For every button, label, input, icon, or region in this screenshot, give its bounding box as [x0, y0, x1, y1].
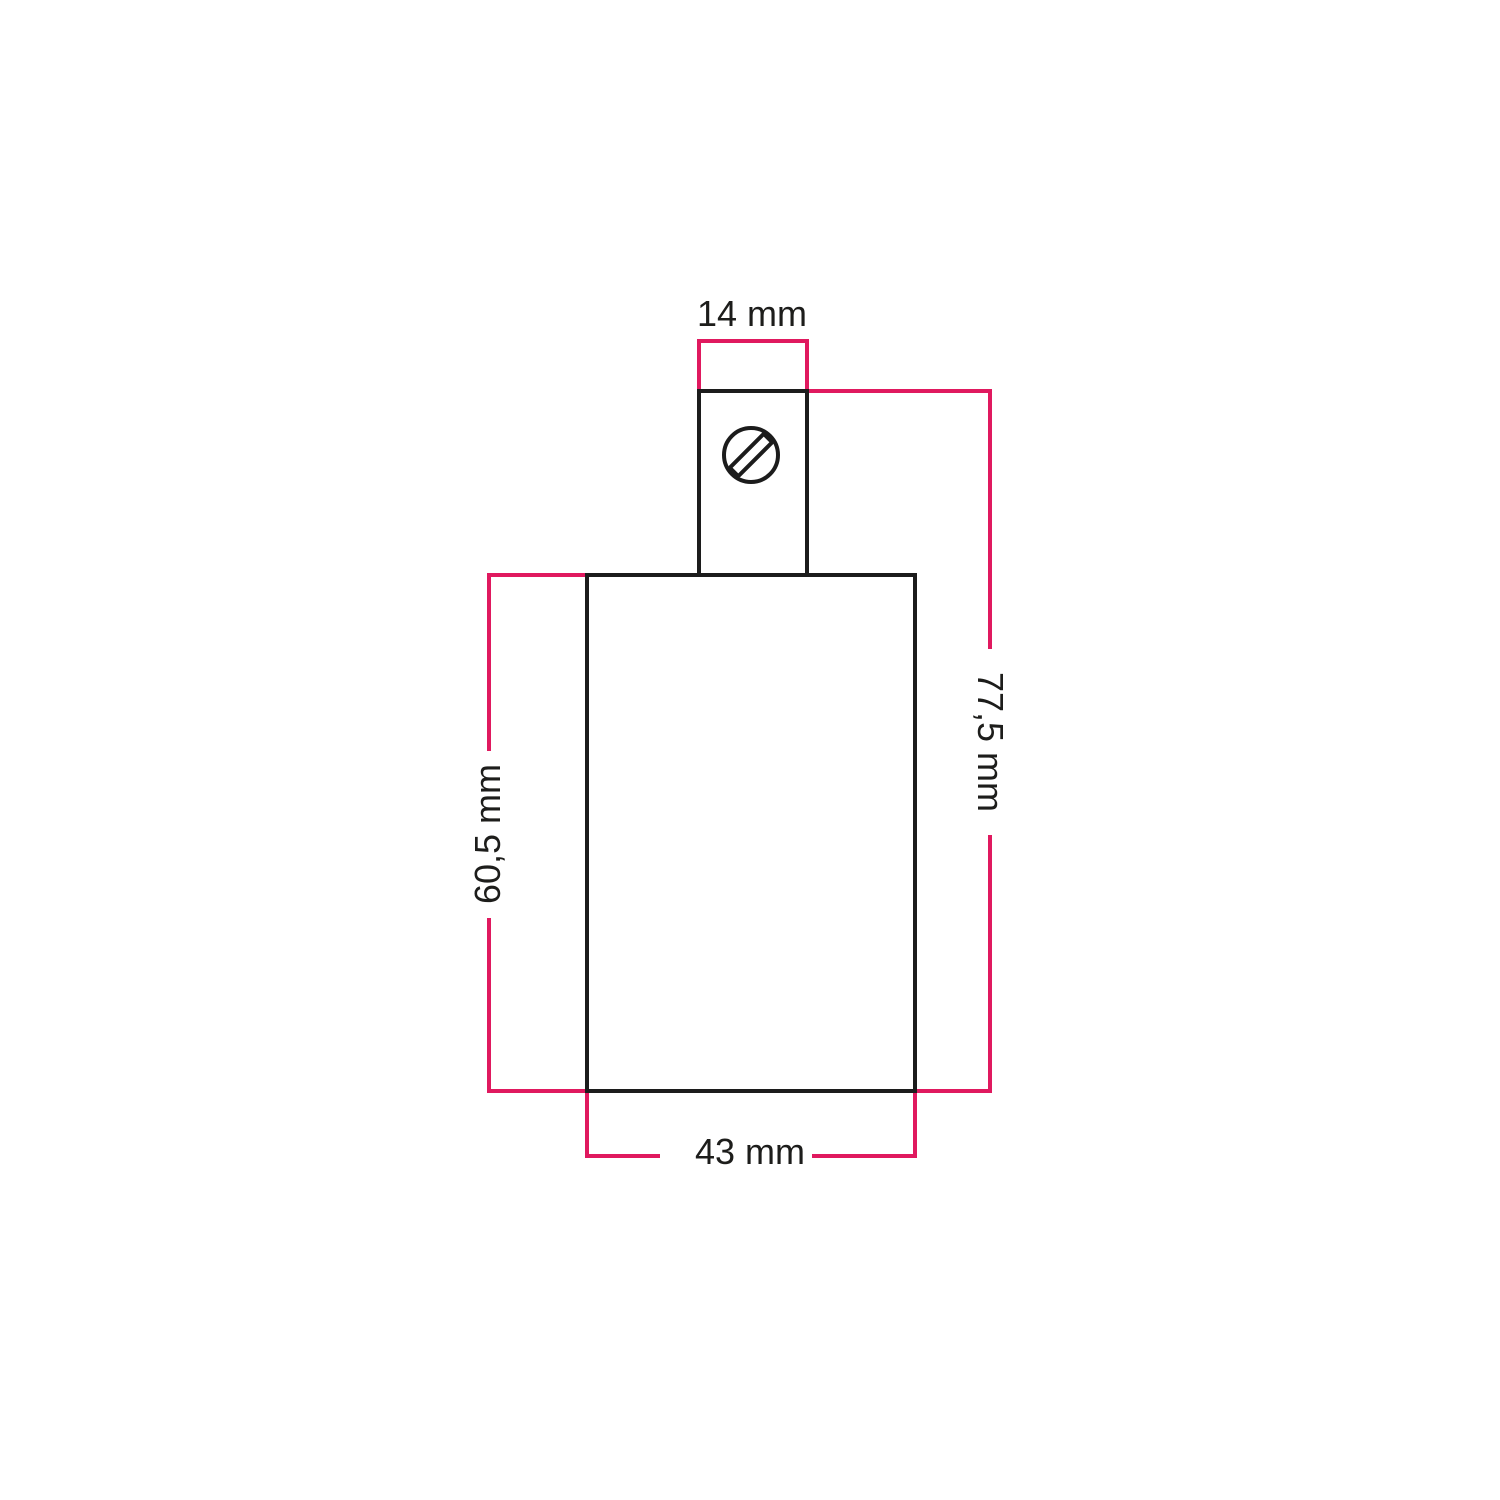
- dim-body-height-extension-top: [487, 573, 585, 577]
- dimension-label-body-width: 43 mm: [695, 1134, 805, 1170]
- dim-top-width-leg-right: [805, 339, 809, 389]
- dimension-label-total-height: 77,5 mm: [972, 672, 1008, 812]
- dim-total-height-line-upper: [988, 389, 992, 649]
- dim-top-width-leg-left: [697, 339, 701, 389]
- dim-body-width-line-left: [585, 1154, 660, 1158]
- dim-total-height-extension-bottom: [917, 1089, 992, 1093]
- dim-total-height-line-lower: [988, 835, 992, 1093]
- dim-body-width-leg-right: [913, 1093, 917, 1158]
- dim-body-height-extension-bottom: [487, 1089, 585, 1093]
- dim-total-height-extension-top: [809, 389, 992, 393]
- dim-top-width-line: [697, 339, 809, 343]
- dimension-diagram-canvas: 14 mm 77,5 mm 60,5 mm 43 mm: [0, 0, 1500, 1500]
- dim-body-height-line-upper: [487, 573, 491, 751]
- dim-body-width-line-right: [812, 1154, 917, 1158]
- dim-body-width-leg-left: [585, 1093, 589, 1158]
- body-outline: [585, 573, 917, 1093]
- dimension-label-body-height: 60,5 mm: [470, 764, 506, 904]
- dim-body-height-line-lower: [487, 918, 491, 1093]
- dimension-label-top-width: 14 mm: [697, 296, 807, 332]
